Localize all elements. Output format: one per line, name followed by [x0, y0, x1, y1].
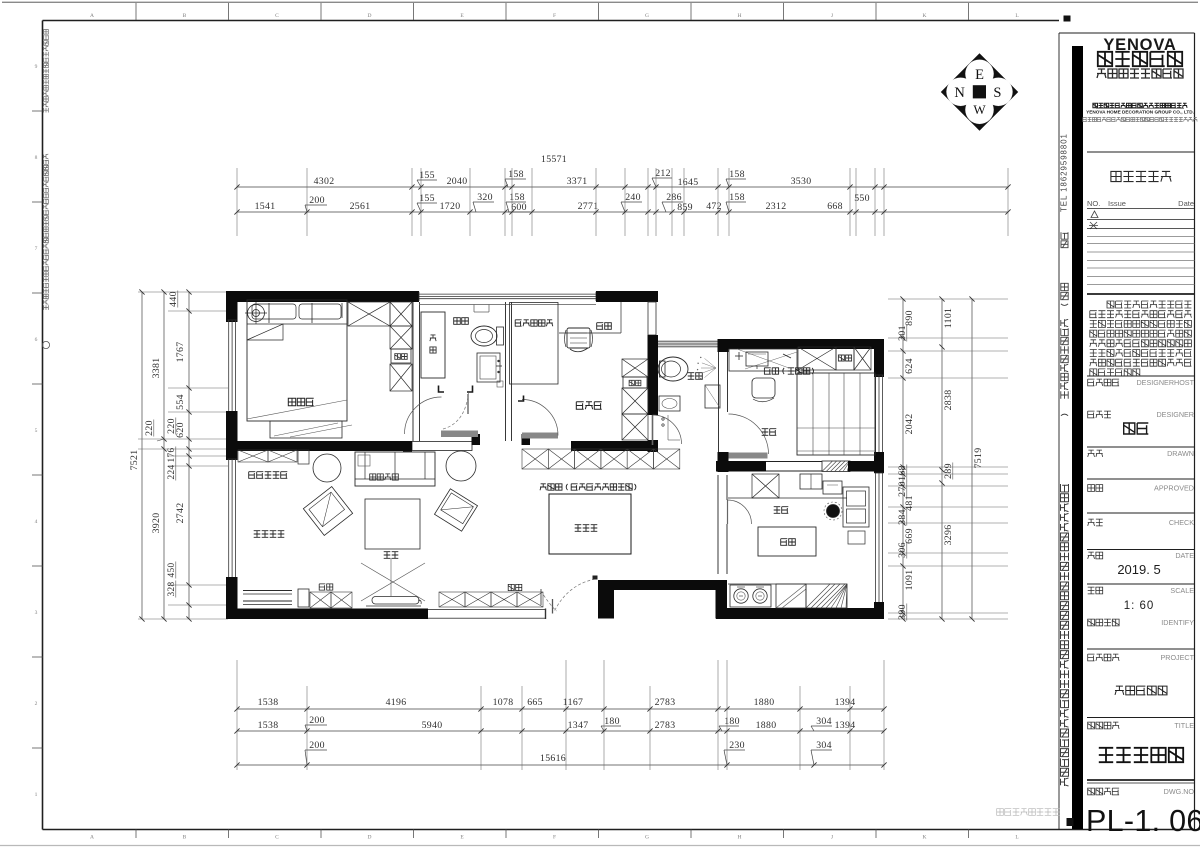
- svg-text:7: 7: [35, 246, 38, 252]
- svg-text:304: 304: [816, 740, 832, 751]
- svg-text:D: D: [368, 13, 372, 19]
- svg-text:TITLE: TITLE: [1174, 721, 1194, 730]
- svg-text:2040: 2040: [447, 176, 468, 187]
- svg-text:158: 158: [729, 192, 745, 203]
- svg-text:554: 554: [175, 394, 186, 410]
- svg-text:1541: 1541: [255, 201, 276, 212]
- svg-text:S: S: [993, 85, 1001, 101]
- svg-text:4302: 4302: [314, 176, 335, 187]
- svg-text:306: 306: [897, 542, 908, 558]
- svg-text:481: 481: [904, 495, 915, 511]
- svg-text:C: C: [275, 13, 279, 19]
- svg-text:4196: 4196: [386, 697, 407, 708]
- svg-text:1645: 1645: [678, 177, 699, 188]
- svg-text:4: 4: [35, 519, 38, 525]
- svg-text:2771: 2771: [578, 201, 599, 212]
- svg-text:9: 9: [35, 64, 38, 70]
- svg-text:1078: 1078: [493, 697, 514, 708]
- svg-text:2783: 2783: [655, 697, 676, 708]
- svg-text:D: D: [368, 835, 372, 841]
- svg-text:F: F: [553, 835, 556, 841]
- svg-text:3920: 3920: [151, 513, 162, 534]
- svg-text:G: G: [645, 835, 649, 841]
- svg-text:200: 200: [309, 715, 325, 726]
- svg-text:IDENTIFY: IDENTIFY: [1161, 618, 1194, 627]
- svg-text:155: 155: [419, 170, 435, 181]
- svg-text:E: E: [975, 67, 984, 83]
- svg-text:3: 3: [35, 610, 38, 616]
- svg-text:304: 304: [816, 716, 832, 727]
- svg-text:SCALE: SCALE: [1170, 586, 1194, 595]
- svg-text:220: 220: [144, 420, 155, 436]
- svg-text:N: N: [954, 85, 965, 101]
- svg-text:DATE: DATE: [1175, 551, 1194, 560]
- svg-text:155: 155: [419, 193, 435, 204]
- svg-text:K: K: [923, 13, 927, 19]
- svg-text:230: 230: [729, 740, 745, 751]
- svg-text:1767: 1767: [175, 342, 186, 363]
- svg-text:2783: 2783: [655, 720, 676, 731]
- svg-text:2042: 2042: [904, 414, 915, 435]
- svg-text:15571: 15571: [541, 154, 567, 165]
- svg-text:Date: Date: [1178, 199, 1194, 208]
- svg-text:200: 200: [309, 195, 325, 206]
- svg-text:DESIGNER: DESIGNER: [1156, 410, 1194, 419]
- svg-text:7521: 7521: [129, 450, 140, 471]
- svg-text:668: 668: [827, 201, 843, 212]
- svg-text:440: 440: [168, 291, 179, 307]
- svg-text:286: 286: [666, 192, 682, 203]
- svg-text:2561: 2561: [350, 201, 371, 212]
- svg-text:1: 1: [35, 792, 38, 798]
- svg-text:2742: 2742: [175, 503, 186, 524]
- svg-text:15616: 15616: [540, 753, 566, 764]
- svg-text:TEL 18629598801: TEL 18629598801: [1060, 133, 1069, 212]
- svg-text:158: 158: [729, 169, 745, 180]
- svg-text:H: H: [738, 13, 742, 19]
- svg-text:DESIGNERHOST: DESIGNERHOST: [1136, 378, 1194, 387]
- svg-text:3381: 3381: [151, 358, 162, 379]
- svg-text:A: A: [90, 835, 94, 841]
- svg-text:665: 665: [527, 697, 543, 708]
- svg-text:200: 200: [309, 740, 325, 751]
- svg-text:624: 624: [904, 358, 915, 374]
- svg-text:1538: 1538: [258, 697, 279, 708]
- svg-text:1720: 1720: [440, 201, 461, 212]
- svg-text:289: 289: [943, 463, 954, 479]
- svg-text:5940: 5940: [422, 720, 443, 731]
- svg-text:2: 2: [35, 701, 38, 707]
- svg-text:PL-1. 06: PL-1. 06: [1086, 804, 1200, 838]
- svg-text:890: 890: [904, 310, 915, 326]
- svg-text:G: G: [645, 13, 649, 19]
- svg-text:6: 6: [35, 337, 38, 343]
- svg-text:CHECK: CHECK: [1169, 518, 1194, 527]
- svg-text:APPROVED: APPROVED: [1154, 484, 1194, 493]
- svg-text:DWG.NO: DWG.NO: [1164, 787, 1195, 796]
- svg-text:A: A: [90, 13, 94, 19]
- svg-text:180: 180: [724, 716, 740, 727]
- svg-text:180: 180: [604, 716, 620, 727]
- svg-text:212: 212: [655, 168, 671, 179]
- svg-text:8: 8: [35, 155, 38, 161]
- svg-text:YENOVA HOME DECORATION GROUP C: YENOVA HOME DECORATION GROUP CO., LTD.: [1086, 110, 1194, 115]
- svg-text:1880: 1880: [754, 697, 775, 708]
- svg-text:158: 158: [508, 169, 524, 180]
- svg-text:3296: 3296: [943, 525, 954, 546]
- svg-text:600: 600: [511, 202, 527, 213]
- svg-text:669: 669: [904, 528, 915, 544]
- svg-text:Issue: Issue: [1108, 199, 1126, 208]
- svg-text:W: W: [973, 102, 986, 117]
- svg-text:240: 240: [625, 192, 641, 203]
- svg-text:7519: 7519: [973, 448, 984, 469]
- svg-text:270: 270: [897, 481, 908, 497]
- svg-text:5: 5: [35, 428, 38, 434]
- svg-text:1101: 1101: [943, 308, 954, 328]
- svg-text:301: 301: [897, 325, 908, 341]
- svg-text:H: H: [738, 835, 742, 841]
- svg-text:2838: 2838: [943, 390, 954, 411]
- svg-text:550: 550: [854, 193, 870, 204]
- svg-text:2312: 2312: [766, 201, 787, 212]
- svg-text:C: C: [275, 835, 279, 841]
- svg-text:B: B: [183, 835, 187, 841]
- svg-text:3371: 3371: [567, 176, 588, 187]
- svg-text:1538: 1538: [258, 720, 279, 731]
- svg-text:3530: 3530: [791, 176, 812, 187]
- svg-text:PROJECT: PROJECT: [1160, 653, 1194, 662]
- svg-text:1880: 1880: [756, 720, 777, 731]
- svg-text:B: B: [183, 13, 187, 19]
- svg-text:2019. 5: 2019. 5: [1117, 562, 1160, 577]
- svg-text:K: K: [923, 835, 927, 841]
- svg-text:1091: 1091: [904, 570, 915, 591]
- svg-text:1: 60: 1: 60: [1124, 600, 1155, 612]
- svg-text:NO.: NO.: [1087, 199, 1100, 208]
- svg-text:620: 620: [175, 422, 186, 438]
- svg-text:DRAWN: DRAWN: [1167, 449, 1194, 458]
- svg-text:F: F: [553, 13, 556, 19]
- svg-text:1347: 1347: [568, 720, 589, 731]
- svg-text:320: 320: [477, 192, 493, 203]
